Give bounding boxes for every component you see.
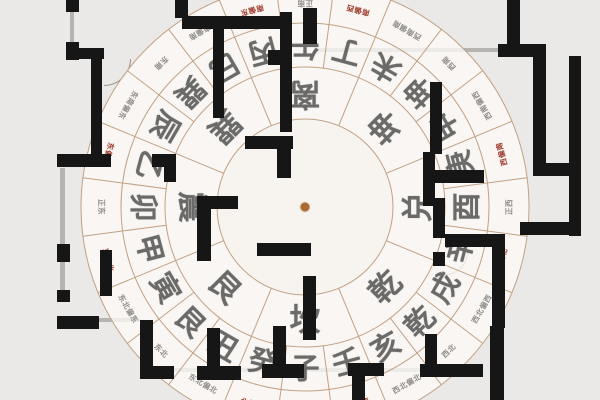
wall-segment <box>425 334 437 367</box>
wall-segment <box>303 8 317 44</box>
wall-segment <box>182 16 282 29</box>
wall-segment <box>197 208 211 261</box>
wall-segment <box>433 252 445 266</box>
wall-segment <box>430 82 442 154</box>
wall-segment <box>257 243 311 256</box>
wall-segment <box>262 364 304 378</box>
floorplan-canvas: 离坤兑乾坎艮震巽午丁未坤申庚酉辛戌乾亥壬子癸丑艮寅甲卯乙辰巽巳丙正南南偏西西南偏… <box>0 0 600 400</box>
wall-segment <box>507 0 520 48</box>
direction-label: 正南 <box>297 0 313 7</box>
wall-segment <box>57 316 99 329</box>
wall-segment <box>569 56 581 236</box>
direction-label: 正西 <box>505 199 513 215</box>
wall-segment <box>348 363 384 376</box>
wall-segment <box>277 148 291 178</box>
wall-segment <box>352 376 365 400</box>
trigram-character: 离 <box>290 78 321 109</box>
wall-segment <box>213 28 224 118</box>
wall-segment <box>435 170 484 183</box>
wall-segment <box>140 366 174 379</box>
wall-segment <box>66 0 79 12</box>
wall-segment <box>273 326 286 368</box>
wall-segment <box>91 48 102 160</box>
wall-segment <box>490 326 504 400</box>
compass-center-dot[interactable] <box>301 203 310 212</box>
wall-segment <box>100 250 112 296</box>
wall-segment <box>207 328 220 370</box>
wall-segment <box>533 44 546 176</box>
wall-segment <box>175 0 188 18</box>
wall-segment <box>492 234 505 328</box>
wall-segment <box>280 12 292 132</box>
direction-label: 正东 <box>97 199 105 215</box>
wall-segment <box>268 50 281 65</box>
wall-segment <box>57 244 70 262</box>
wall-segment <box>164 154 176 182</box>
mountain-character: 卯 <box>129 192 158 221</box>
mountain-character: 酉 <box>453 192 482 221</box>
wall-segment <box>423 152 435 206</box>
wall-segment <box>303 276 316 340</box>
wall-segment <box>57 154 111 167</box>
wall-segment <box>140 320 153 372</box>
wall-segment <box>57 290 70 302</box>
wall-segment <box>520 222 581 235</box>
